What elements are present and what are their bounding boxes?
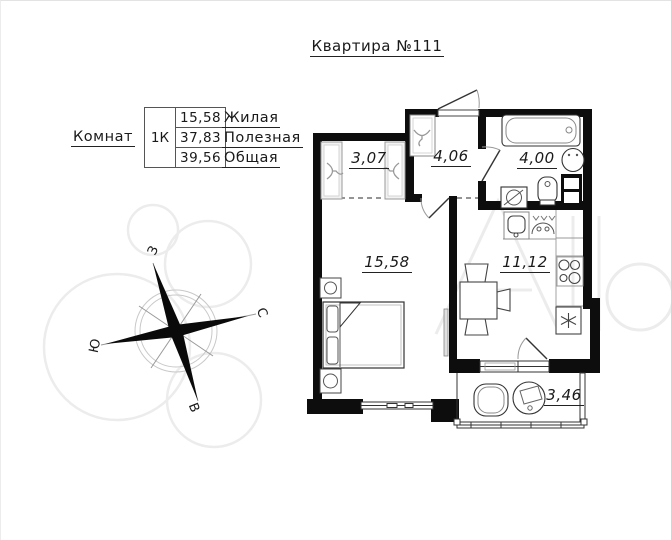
washbasin-icon [562, 149, 584, 172]
wall [583, 298, 600, 309]
legend-label-total: Общая [222, 150, 280, 168]
room-area-label-bathroom: 4,00 [513, 149, 561, 169]
page-title: Квартира №111 [294, 37, 460, 57]
floor-plan-page: Квартира №111 Комнат 1К 15,58 37,83 39,5… [0, 0, 671, 540]
living-room-door [421, 198, 449, 218]
legend-rooms-label: Комнат [71, 129, 135, 147]
fridge-icon [556, 307, 581, 334]
legend-value-useful: 37,83 [176, 128, 226, 148]
kitchen-sink-icon [504, 212, 529, 239]
balcony-door-window-unit [480, 361, 549, 372]
wall [449, 196, 457, 373]
floor-plan-drawing [1, 1, 671, 540]
washing-machine-icon [501, 187, 527, 208]
living-room-fixtures [320, 278, 448, 393]
tv-icon [444, 309, 448, 356]
vent-shaft-icon [561, 174, 582, 206]
bed-icon [323, 302, 404, 368]
bathtub-icon [502, 115, 580, 146]
hood-stove-icon [532, 216, 555, 234]
toilet-icon [538, 177, 557, 205]
chair-icon [497, 289, 510, 311]
legend-unit: 1К [145, 108, 176, 168]
room-area-label-living-room: 15,58 [357, 253, 417, 273]
armchair-icon [474, 384, 508, 416]
nightstand-icon [320, 369, 341, 393]
wall [307, 399, 363, 414]
balcony-door [518, 338, 547, 359]
bathroom-door [482, 147, 500, 181]
legend-label-useful: Полезная [222, 130, 303, 148]
wall [449, 359, 480, 373]
compass-star [105, 263, 248, 401]
compass-rose [101, 263, 256, 401]
hob-icon [557, 257, 583, 286]
dining-table-icon [460, 264, 510, 335]
entry-threshold [438, 110, 479, 116]
nightstand-icon [320, 278, 341, 298]
wall [405, 194, 422, 202]
room-area-label-kitchen: 11,12 [495, 253, 555, 273]
living-room-window [361, 402, 433, 409]
wall [549, 359, 600, 373]
balcony-fixtures [474, 382, 545, 416]
compass-label-south: Ю [87, 337, 106, 356]
room-area-label-hallway: 4,06 [427, 147, 475, 167]
chair-icon [465, 318, 488, 335]
legend-value-total: 39,56 [176, 148, 226, 168]
legend-label-living: Жилая [222, 110, 280, 128]
wall [313, 133, 405, 141]
legend-table: 1К 15,58 37,83 39,56 [144, 107, 226, 168]
legend-value-living: 15,58 [176, 108, 226, 128]
room-area-label-wardrobe: 3,07 [345, 149, 393, 169]
chair-icon [465, 264, 488, 282]
entry-door [438, 90, 479, 109]
room-area-label-balcony: 3,46 [539, 386, 589, 406]
